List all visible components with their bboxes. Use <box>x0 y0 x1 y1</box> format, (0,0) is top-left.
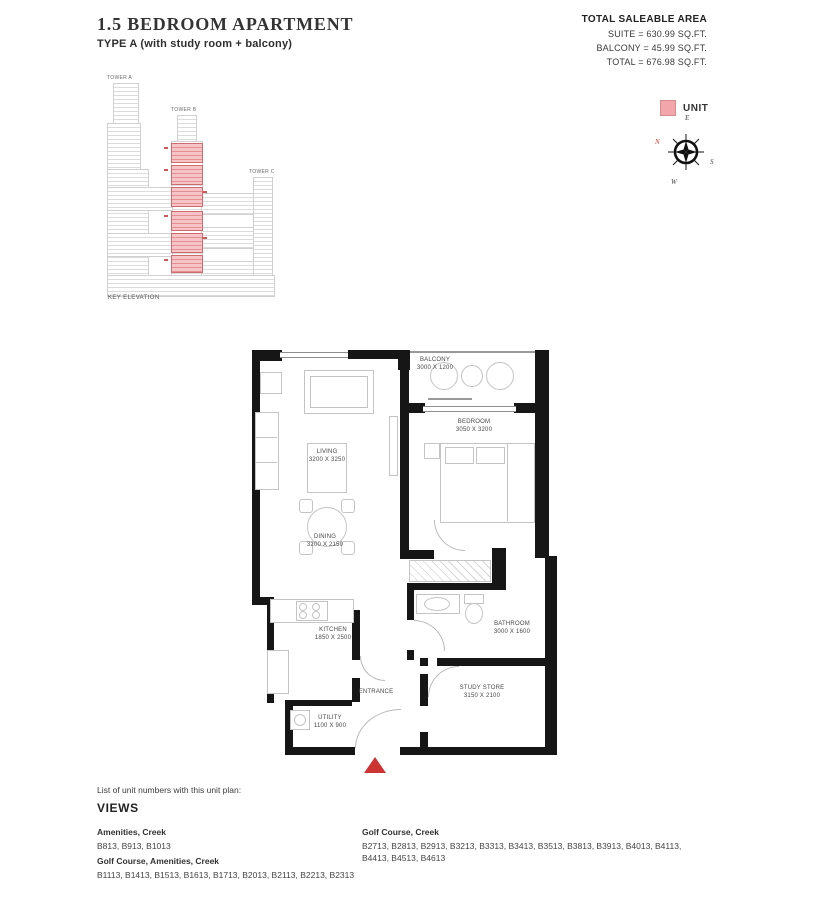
view-group-amenities-creek: Amenities, Creek B813, B913, B1013 <box>97 827 357 852</box>
room-label-study-store: STUDY STORE3150 X 2100 <box>450 684 514 700</box>
compass-rose-icon: E N S W <box>653 112 719 190</box>
view-group-title: Golf Course, Amenities, Creek <box>97 856 362 866</box>
unit-list-intro: List of unit numbers with this unit plan… <box>97 785 241 795</box>
key-elevation-diagram: TOWER A TOWER B TOWER C <box>103 75 283 303</box>
view-group-title: Golf Course, Creek <box>362 827 697 837</box>
compass-south-label: S <box>710 158 714 166</box>
area-heading: TOTAL SALEABLE AREA <box>582 14 707 25</box>
area-total: TOTAL = 676.98 SQ.FT. <box>582 57 707 67</box>
apartment-floor-plan: BALCONY3000 X 1200 BEDROOM3050 X 3200 LI… <box>252 348 560 766</box>
floor-plan-page: 1.5 BEDROOM APARTMENT TYPE A (with study… <box>0 0 814 900</box>
tower-a-label: TOWER A <box>107 75 132 81</box>
view-group-units: B813, B913, B1013 <box>97 840 357 852</box>
room-label-bedroom: BEDROOM3050 X 3200 <box>442 418 506 434</box>
page-title: 1.5 BEDROOM APARTMENT <box>97 14 353 35</box>
room-label-bathroom: BATHROOM3000 X 1600 <box>482 620 542 636</box>
room-label-kitchen: KITCHEN1850 X 2500 <box>305 626 361 642</box>
compass-west-label: W <box>671 178 677 186</box>
compass-east-label: E <box>685 114 689 122</box>
view-group-units: B1113, B1413, B1513, B1613, B1713, B2013… <box>97 869 362 881</box>
saleable-area-block: TOTAL SALEABLE AREA SUITE = 630.99 SQ.FT… <box>582 14 707 67</box>
view-group-golf-creek: Golf Course, Creek B2713, B2813, B2913, … <box>362 827 697 865</box>
area-suite: SUITE = 630.99 SQ.FT. <box>582 29 707 39</box>
tower-b-label: TOWER B <box>171 107 196 113</box>
views-heading: VIEWS <box>97 801 139 815</box>
area-balcony: BALCONY = 45.99 SQ.FT. <box>582 43 707 53</box>
view-group-golf-amenities-creek: Golf Course, Amenities, Creek B1113, B14… <box>97 856 362 881</box>
compass-star-icon <box>653 112 719 190</box>
room-label-living: LIVING3200 X 3250 <box>299 448 355 464</box>
compass-north-label: N <box>655 138 660 146</box>
room-label-utility: UTILITY1100 X 900 <box>302 714 358 730</box>
view-group-title: Amenities, Creek <box>97 827 357 837</box>
tower-c-label: TOWER C <box>249 169 275 175</box>
room-label-dining: DINING3200 X 2150 <box>297 533 353 549</box>
view-group-units: B2713, B2813, B2913, B3213, B3313, B3413… <box>362 840 697 865</box>
entrance-arrow-icon <box>364 757 386 773</box>
page-subtitle: TYPE A (with study room + balcony) <box>97 38 292 50</box>
room-label-balcony: BALCONY3000 X 1200 <box>404 356 466 372</box>
entrance-label: ENTRANCE <box>350 688 402 696</box>
key-elevation-caption: KEY ELEVATION <box>108 295 160 301</box>
